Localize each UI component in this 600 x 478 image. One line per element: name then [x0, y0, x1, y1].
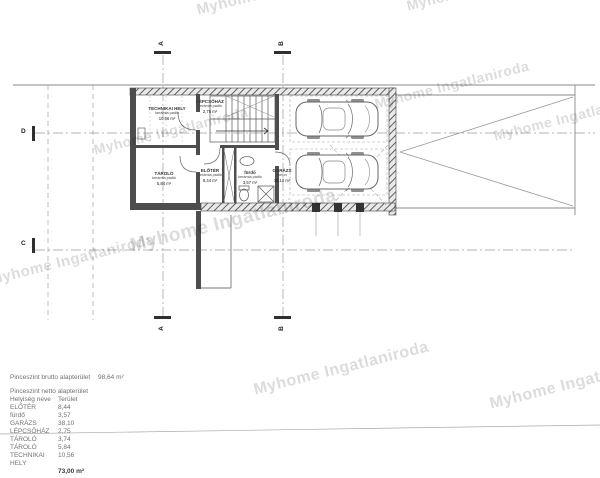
room-label-garazs: GARÁZS beton 38,10 m²	[265, 168, 299, 183]
table-row: GARÁZS 38,10	[10, 420, 124, 428]
section-b-bottom-tick	[274, 316, 291, 319]
gross-area-value: 98,64 m²	[98, 374, 124, 382]
table-row: TECHNIKAI HELY 10,56	[10, 452, 124, 468]
table-row: ELŐTÉR 8,44	[10, 404, 124, 412]
axis-d-label: D	[21, 128, 26, 135]
column-room-name: Helyiség neve	[10, 396, 58, 404]
axis-c-tick	[32, 238, 35, 253]
section-b-top-label: B	[278, 41, 285, 46]
room-label-technikai: TECHNIKAI HELY kerámia padló 10,56 m²	[145, 106, 189, 121]
table-header-row: Helyiség neve Terület	[10, 396, 124, 404]
table-row: LÉPCSŐHÁZ 2,75	[10, 428, 124, 436]
total-area-row: 73,00 m²	[10, 468, 124, 476]
room-label-eloter: ELŐTÉR kerámia padló 8,44 m²	[192, 168, 228, 183]
axis-d-tick	[32, 126, 35, 141]
car-2	[296, 152, 378, 192]
door-arc-garage	[275, 152, 290, 166]
table-row: TÁROLÓ 3,74	[10, 436, 124, 444]
room-label-tarolo: TÁROLÓ kerámia padló 5,84 m²	[142, 171, 186, 186]
room-label-furdo: fürdő kerámia padló 3,57 m²	[234, 170, 266, 185]
door-arc-hall	[204, 148, 220, 164]
gross-area-label: Pinceszint brutto alapterület	[10, 374, 98, 382]
section-b-top-tick	[274, 51, 291, 54]
floorplan-page: D C A B A B TECHNIKAI HELY kerámia padló…	[0, 0, 600, 478]
table-row: TÁROLÓ 5,84	[10, 444, 124, 452]
garage-door-pier	[334, 203, 342, 212]
section-b-bottom-label: B	[278, 326, 285, 331]
gross-area-row: Pinceszint brutto alapterület 98,64 m²	[10, 374, 124, 382]
column-area: Terület	[58, 396, 98, 404]
table-row: fürdő 3,57	[10, 412, 124, 420]
net-area-label: Pinceszint netto alapterület	[10, 388, 88, 396]
section-a-top-tick	[154, 51, 171, 54]
section-a-bottom-tick	[154, 316, 171, 319]
axis-c-label: C	[21, 240, 26, 247]
room-label-lepcsohaz: LÉPCSŐHÁZ kerámia padló 2,75 m²	[192, 99, 228, 114]
washbasin-icon	[240, 157, 254, 166]
total-area-value: 73,00 m²	[58, 468, 98, 476]
area-summary-table: Pinceszint brutto alapterület 98,64 m² P…	[10, 374, 124, 476]
garage-door-pier	[312, 203, 320, 212]
driveway-ramp	[395, 85, 575, 215]
garage-area	[290, 96, 388, 207]
garage-door-pier	[356, 203, 364, 212]
wc-icon	[240, 189, 249, 201]
car-1	[296, 99, 378, 139]
net-area-row: Pinceszint netto alapterület	[10, 388, 124, 396]
boiler-equipment	[138, 128, 145, 139]
section-a-bottom-label: A	[158, 326, 165, 331]
section-a-top-label: A	[158, 41, 165, 46]
